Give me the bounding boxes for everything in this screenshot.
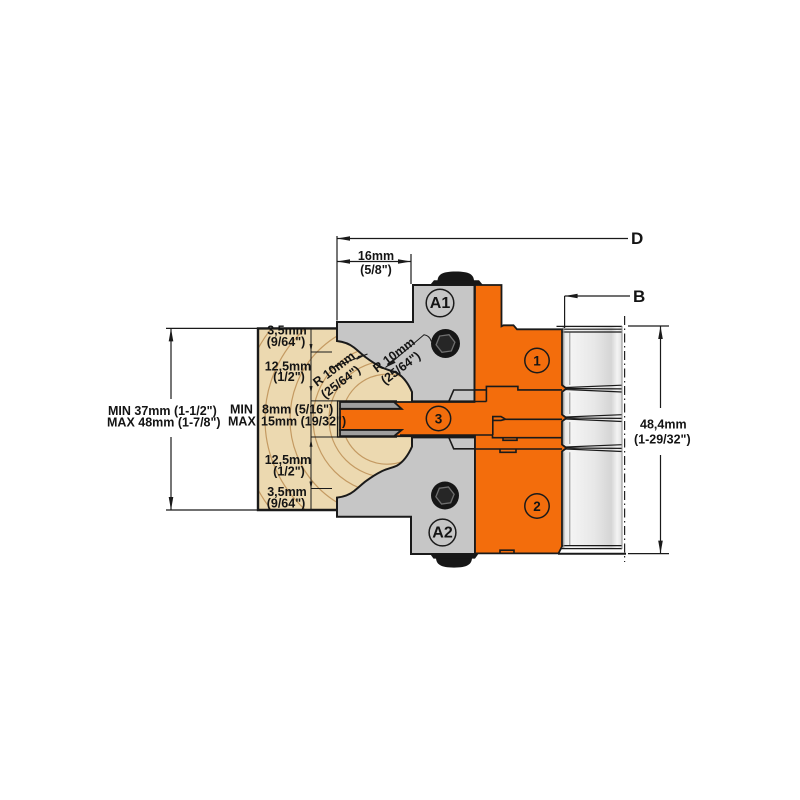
- svg-text:(1-29/32"): (1-29/32"): [634, 433, 691, 447]
- svg-text:3: 3: [435, 411, 443, 426]
- svg-text:MAX 48mm (1-7/8"): MAX 48mm (1-7/8"): [107, 416, 221, 430]
- svg-text:48,4mm: 48,4mm: [640, 418, 687, 432]
- svg-text:2: 2: [533, 499, 541, 514]
- svg-text:(1/2"): (1/2"): [273, 370, 305, 384]
- svg-text:(9/64"): (9/64"): [267, 497, 306, 511]
- svg-text:A1: A1: [430, 295, 451, 312]
- svg-text:(1/2"): (1/2"): [273, 465, 305, 479]
- svg-text:16mm: 16mm: [358, 249, 394, 263]
- svg-text:MAX: MAX: [228, 415, 256, 429]
- svg-text:A2: A2: [432, 525, 453, 542]
- svg-text:1: 1: [533, 353, 541, 368]
- svg-text:(9/64"): (9/64"): [267, 335, 306, 349]
- svg-text:B: B: [633, 287, 645, 306]
- svg-text:15mm (19/32"): 15mm (19/32"): [261, 415, 346, 429]
- svg-text:(5/8"): (5/8"): [360, 263, 392, 277]
- svg-text:D: D: [631, 229, 643, 248]
